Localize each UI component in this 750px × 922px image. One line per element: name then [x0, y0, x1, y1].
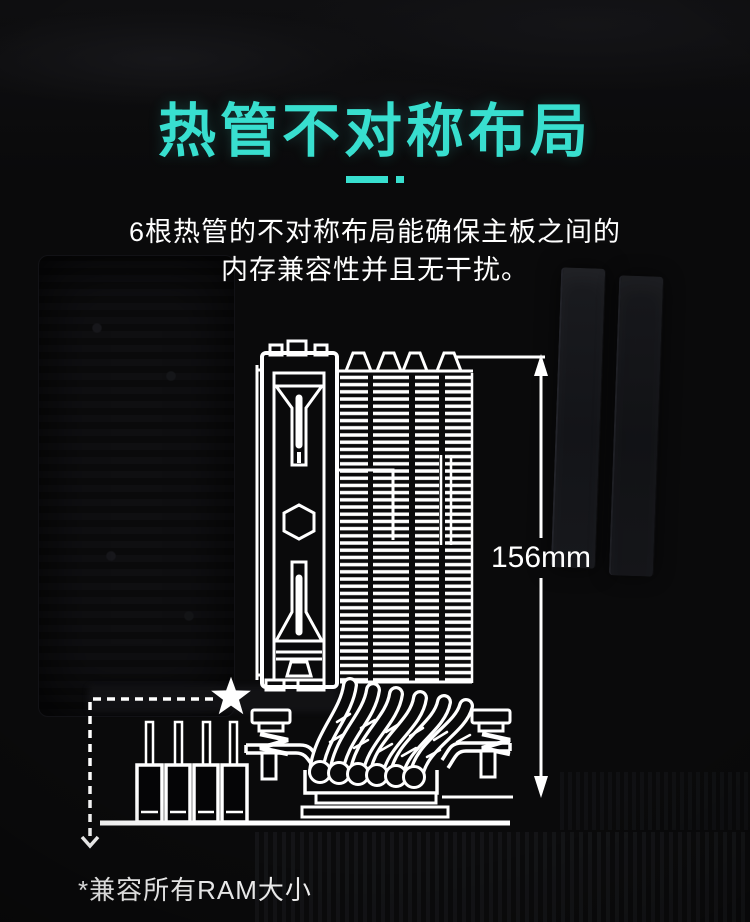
height-dimension-label: 156mm: [491, 541, 591, 574]
cooler-diagram: 156mm: [0, 0, 750, 922]
star-icon: [211, 677, 251, 715]
ram-modules-group: [137, 722, 247, 822]
promo-page: 热管不对称布局 6根热管的不对称布局能确保主板之间的 内存兼容性并且无干扰。 1…: [0, 0, 750, 922]
heatpipe-tips: [346, 353, 461, 371]
ram-module: [194, 765, 218, 822]
fan-group: [257, 341, 337, 690]
ram-module: [222, 765, 247, 822]
arrow-down-icon: [534, 776, 548, 798]
chevron-down-icon: [82, 837, 98, 846]
hexagon-hub-icon: [284, 505, 314, 539]
ram-module: [166, 765, 190, 822]
fin-stack-group: [336, 353, 473, 684]
ram-module: [137, 765, 162, 822]
footnote: *兼容所有RAM大小: [78, 870, 312, 907]
